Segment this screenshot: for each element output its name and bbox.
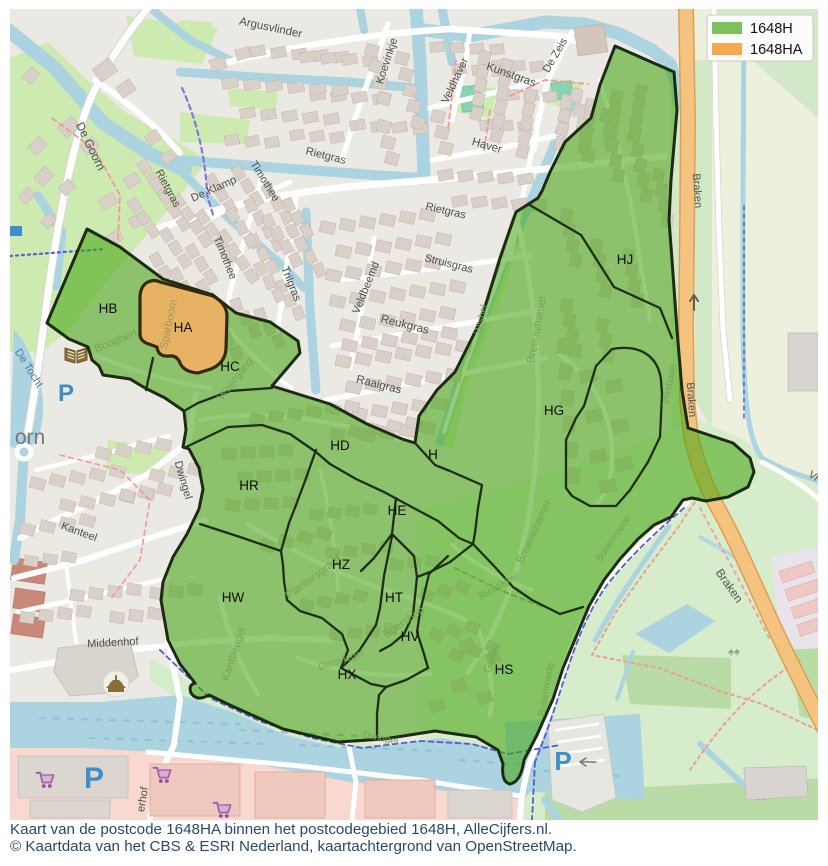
svg-text:HW: HW	[222, 590, 245, 605]
svg-text:HB: HB	[99, 301, 118, 316]
svg-text:Kaart van de postcode 1648HA b: Kaart van de postcode 1648HA binnen het …	[10, 821, 552, 838]
svg-text:HR: HR	[239, 478, 259, 493]
svg-text:HS: HS	[495, 662, 514, 677]
svg-text:orn: orn	[15, 426, 45, 449]
svg-text:HG: HG	[544, 403, 564, 418]
svg-text:Braken: Braken	[690, 173, 704, 209]
svg-text:H: H	[428, 447, 438, 462]
svg-text:HZ: HZ	[332, 557, 350, 572]
svg-text:HA: HA	[174, 320, 193, 335]
svg-text:HX: HX	[338, 667, 357, 682]
svg-text:P: P	[58, 380, 74, 407]
svg-text:HE: HE	[388, 503, 407, 518]
svg-text:P: P	[84, 762, 104, 795]
svg-text:HC: HC	[220, 359, 240, 374]
svg-text:1648HA: 1648HA	[750, 42, 803, 58]
svg-text:HT: HT	[385, 590, 403, 605]
svg-text:HV: HV	[401, 629, 420, 644]
svg-text:1648H: 1648H	[750, 21, 793, 37]
svg-text:♠♠: ♠♠	[728, 646, 740, 658]
svg-text:© Kaartdata van het CBS & ESRI: © Kaartdata van het CBS & ESRI Nederland…	[10, 838, 577, 855]
svg-text:P: P	[554, 746, 571, 776]
svg-text:HJ: HJ	[617, 252, 634, 267]
svg-text:HD: HD	[330, 438, 350, 453]
